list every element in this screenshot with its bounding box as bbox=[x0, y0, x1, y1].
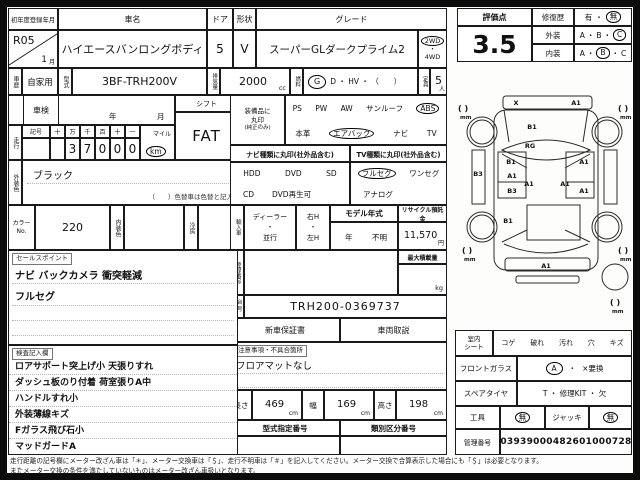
glass-replace: ×要換 bbox=[582, 363, 603, 374]
interior-grade-value: A・ B・ C bbox=[574, 44, 632, 62]
equipment-label-cell: 装備品に 丸印 (純正のみ) bbox=[230, 95, 285, 145]
seat-hole: 穴 bbox=[588, 338, 595, 348]
reg-number-value bbox=[244, 250, 398, 295]
ext-color-dotline bbox=[27, 183, 233, 184]
mgmt-number-label-cell: 管理番号 bbox=[455, 429, 500, 455]
spare-tire bbox=[602, 264, 628, 290]
ext-b: B bbox=[596, 31, 601, 40]
max-load-unit: kg bbox=[435, 284, 443, 292]
displacement-unit: cc bbox=[279, 84, 286, 92]
mileage-label-cell: 走行 bbox=[8, 125, 22, 160]
seat-burn: コゲ bbox=[501, 338, 515, 348]
fuel-label: 燃料 bbox=[294, 76, 300, 87]
displacement-label-cell: 排気量 bbox=[207, 68, 220, 95]
car-name-value: ハイエースバンロングボディ bbox=[58, 30, 207, 68]
height-unit: cm bbox=[434, 410, 443, 417]
mark-left-quarter: B1 bbox=[503, 217, 513, 225]
ext-color-label-cell: 外装色 bbox=[8, 160, 22, 205]
seat-label-cell: 室内 シート bbox=[455, 330, 493, 356]
bracket-rear-left: ( ) bbox=[462, 246, 472, 255]
auction-sheet-left-table: 初年度登録年月 車名 ドア 形状 グレード R05 1 月 ハイエースバンロング… bbox=[8, 8, 447, 455]
bracket-rear-right: ( ) bbox=[618, 246, 628, 255]
equip-pw: PW bbox=[315, 104, 327, 113]
seat-condition-cell: コゲ 破れ 汚れ 穴 キズ bbox=[493, 330, 632, 356]
color-no-value: 220 bbox=[35, 205, 110, 250]
equipment-items-cell: PS PW AW サンルーフ ABS 本革 エアバック ナビ TV bbox=[285, 95, 447, 145]
mark-front-bumper-left: X bbox=[513, 99, 518, 107]
tv-items-cell: フルセグ ワンセグ アナログ bbox=[350, 162, 447, 205]
int-color-label: 内装色 bbox=[114, 219, 120, 237]
exterior-grade-value: A・ B・ C bbox=[574, 26, 632, 44]
recycle-amount: 11,570 bbox=[404, 230, 437, 241]
class-number-value bbox=[340, 436, 447, 455]
int-dot1: ・ bbox=[587, 48, 595, 59]
int-b-circled: B bbox=[596, 47, 609, 58]
handle-left: 左H bbox=[307, 233, 319, 244]
equip-navi: ナビ bbox=[393, 128, 408, 139]
history-label-cell: 車歴 bbox=[8, 68, 22, 95]
a-pillars bbox=[504, 110, 588, 142]
max-load-value: kg bbox=[398, 264, 447, 295]
first-registration-header: 初年度登録年月 bbox=[8, 8, 58, 30]
digit-header-100: 百 bbox=[95, 125, 110, 138]
sales-dot1 bbox=[12, 283, 234, 284]
history: 自家用 bbox=[27, 76, 53, 88]
equip-tv: TV bbox=[427, 129, 437, 138]
length: 469 bbox=[265, 399, 284, 410]
score-label: 評価点 bbox=[483, 12, 507, 23]
digit-header-100k: 十 bbox=[50, 125, 65, 138]
tool-label-cell: 工具 bbox=[455, 406, 500, 429]
shaken-month-unit: 月 bbox=[157, 111, 165, 122]
inspector-line: 外装薄線キズ bbox=[9, 407, 237, 423]
first-registration-value: R05 1 月 bbox=[8, 30, 58, 68]
digit-h4: 百 bbox=[99, 127, 105, 136]
drive-4wd: 4WD bbox=[425, 54, 441, 62]
equipment-label-3: (純正のみ) bbox=[244, 125, 270, 133]
mark-center: A1 bbox=[524, 180, 534, 188]
tv-oneseg: ワンセグ bbox=[409, 168, 439, 179]
km-unit-circled: km bbox=[146, 146, 166, 157]
fuel-value: G D ・ HV ・ （ ） bbox=[303, 68, 418, 95]
interior-grade-label: 内装 bbox=[546, 48, 561, 59]
length-value: 469 cm bbox=[252, 390, 302, 420]
model-code-value: 3BF-TRH200V bbox=[72, 68, 207, 95]
navi-row1: HDD DVD SD bbox=[231, 163, 349, 184]
height-label-cell: 高さ bbox=[374, 390, 396, 420]
car-name: ハイエースバンロングボディ bbox=[62, 41, 204, 57]
width-value: 169 cm bbox=[324, 390, 374, 420]
mileage-d1 bbox=[50, 138, 65, 160]
int-color-value bbox=[124, 205, 184, 250]
height-value: 198 cm bbox=[396, 390, 447, 420]
inspector-line: Fガラス飛び石小 bbox=[9, 423, 237, 439]
displacement-value: 2000 cc bbox=[220, 68, 290, 95]
notes-line1: フロアマットなし bbox=[236, 358, 312, 372]
spare-tire-label-cell: スペアタイヤ bbox=[455, 381, 517, 406]
recycle-unit: 円 bbox=[438, 238, 444, 247]
tv-analog: アナログ bbox=[363, 189, 393, 200]
digit-h1: 十 bbox=[54, 127, 60, 136]
color-no-label-2: No. bbox=[17, 228, 27, 236]
import-dealer-cell: ディーラー ・ 並行 bbox=[244, 205, 296, 250]
ac-label: 冷房 bbox=[188, 222, 194, 234]
month-unit: 月 bbox=[49, 57, 55, 66]
type-designation-value bbox=[230, 436, 340, 455]
model-label-cell: 型式 bbox=[58, 68, 72, 95]
mm-spare: mm bbox=[612, 309, 624, 315]
sales-line2: フルセグ bbox=[15, 288, 55, 303]
equip-airbag-circled: エアバック bbox=[329, 128, 374, 139]
equip-ps: PS bbox=[293, 104, 302, 113]
import-label: 輸入車 bbox=[234, 219, 240, 236]
mark-left-front-door: B1 bbox=[506, 158, 516, 166]
tool-value: 無 bbox=[500, 406, 545, 429]
repair-history-value: 有 ・ 無 bbox=[574, 8, 632, 26]
tv-row1: フルセグ ワンセグ bbox=[351, 163, 446, 184]
front-right-wheel-inner bbox=[595, 120, 619, 144]
ext-color-value: ブラック （ ）色替車は色替と記入 bbox=[22, 160, 238, 205]
capacity-value: 5 人 bbox=[430, 68, 447, 95]
inspector-lines: ロアサポート突上げ小 天張りすれ ダッシュ板のり付着 荷室張りA中 ハンドルすれ… bbox=[9, 359, 237, 455]
digit-10: 0 bbox=[114, 142, 122, 156]
door-header: ドア bbox=[207, 8, 233, 30]
footer-line2: またメーター交換の条件を満たしていないものはメーター改ざん車扱いとなります。 bbox=[10, 467, 632, 477]
mileage-symbol-label: 記号 bbox=[30, 127, 42, 136]
shift-label: シフト bbox=[196, 99, 217, 109]
tool-label: 工具 bbox=[470, 412, 485, 423]
class-number-label: 類別区分番号 bbox=[371, 423, 416, 434]
windshield bbox=[502, 140, 590, 160]
fuel-label-cell: 燃料 bbox=[290, 68, 303, 95]
warranty-cell: 新車保証書 bbox=[230, 318, 340, 342]
mark-right-door-mid: A1 bbox=[560, 180, 570, 188]
manual-label: 車両取説 bbox=[378, 325, 410, 336]
fuel-options: D ・ HV ・ （ ） bbox=[330, 76, 401, 87]
capacity-unit: 人 bbox=[439, 84, 445, 93]
mark-left-sill: B3 bbox=[473, 170, 482, 178]
inspector-line: ハンドルすれ小 bbox=[9, 391, 237, 407]
front-right-wheel bbox=[592, 117, 622, 147]
mileage-symbol-header: 記号 bbox=[22, 125, 50, 138]
capacity-label: 定員 bbox=[421, 76, 427, 87]
repair-no-circled: 無 bbox=[606, 11, 622, 22]
door-label: ドア bbox=[212, 14, 228, 25]
recycle-label: リサイクル預託金 bbox=[399, 205, 446, 223]
height: 198 bbox=[409, 399, 428, 410]
front-glass-value: A ・ ×要換 bbox=[517, 356, 632, 381]
type-designation-label: 型式指定番号 bbox=[263, 423, 308, 434]
digit-h2: 万 bbox=[69, 127, 75, 136]
jack-label: ジャッキ bbox=[552, 412, 582, 423]
ac-label-cell: 冷房 bbox=[184, 205, 198, 250]
handle-right: 右H bbox=[307, 212, 319, 223]
footer-notes: 走行距離の記号欄にメーター改ざん車は「＊」、メーター交換車は「＄」、走行不明車は… bbox=[10, 457, 632, 476]
rear-left-wheel-inner bbox=[470, 215, 494, 239]
sales-dot3 bbox=[12, 320, 234, 321]
spare-tire-value: T ・ 修理KIT ・ 欠 bbox=[517, 381, 632, 406]
mm-rear-right: mm bbox=[620, 257, 632, 263]
mark-hood: B1 bbox=[527, 123, 537, 131]
equip-aw: AW bbox=[341, 104, 353, 113]
ext-dot1: ・ bbox=[587, 30, 595, 41]
grade-label: グレード bbox=[336, 14, 368, 25]
int-dot2: ・ bbox=[612, 48, 620, 59]
ext-c-circled: C bbox=[613, 29, 626, 40]
front-left-wheel bbox=[467, 117, 497, 147]
tv-type-header: TV種類に丸印(社外品含む) bbox=[350, 145, 447, 162]
jack-none-circled: 無 bbox=[603, 412, 619, 423]
equipment-row2: 本革 エアバック ナビ TV bbox=[286, 121, 446, 146]
navi-dvd-playable: DVD再生可 bbox=[272, 189, 311, 200]
ext-color-note: （ ）色替車は色替と記入 bbox=[149, 191, 234, 201]
int-color-label-cell: 内装色 bbox=[110, 205, 124, 250]
registration-month: 1 bbox=[41, 55, 47, 65]
seat-tear: 破れ bbox=[530, 338, 544, 348]
sales-dot2 bbox=[12, 305, 234, 306]
max-load-header: 最大積載量 bbox=[398, 250, 447, 264]
equip-leather: 本革 bbox=[295, 128, 310, 139]
seat-label-1: 室内 bbox=[468, 335, 481, 343]
seat-scratch: キズ bbox=[610, 338, 624, 348]
score-box: 評価点 3.5 修復歴 有 ・ 無 外装 A・ B・ C 内装 A・ B・ C bbox=[457, 8, 632, 62]
ext-color: ブラック bbox=[33, 167, 73, 182]
mm-front-left: mm bbox=[460, 115, 472, 121]
import-dealer: ディーラー bbox=[253, 212, 288, 223]
car-damage-diagram: X A1 B1 RG B3 B1 A1 B3 A1 A1 A1 A1 B1 A1… bbox=[452, 86, 637, 328]
glass-a-circled: A bbox=[546, 362, 563, 375]
inspector-notes-cell: 検査記入欄 ロアサポート突上げ小 天張りすれ ダッシュ板のり付着 荷室張りA中 … bbox=[8, 345, 238, 455]
inspector-line: マッドガードA bbox=[9, 439, 237, 455]
length-unit: cm bbox=[289, 410, 298, 417]
mgmt-number-label: 管理番号 bbox=[464, 437, 491, 447]
class-number-header: 類別区分番号 bbox=[340, 420, 447, 436]
digit-header-10k: 万 bbox=[65, 125, 80, 138]
mark-right-slide-door: A1 bbox=[579, 187, 589, 195]
width-label: 幅 bbox=[309, 400, 317, 411]
spare-tire-label: スペアタイヤ bbox=[464, 388, 508, 399]
import-dot1: ・ bbox=[267, 222, 274, 233]
import-dot2: ・ bbox=[310, 222, 317, 233]
navi-type-label: ナビ種類に丸印(社外品含む) bbox=[246, 149, 334, 159]
car-name-label: 車名 bbox=[125, 14, 141, 25]
equipment-label-2: 丸印 bbox=[251, 116, 264, 125]
digit-h5: 十 bbox=[114, 127, 120, 136]
cargo-area bbox=[527, 205, 580, 240]
bracket-front-left: ( ) bbox=[458, 104, 468, 113]
score-value: 3.5 bbox=[472, 30, 516, 59]
model-code: 3BF-TRH200V bbox=[102, 75, 177, 88]
inspector-line: ロアサポート突上げ小 天張りすれ bbox=[9, 359, 237, 375]
shaken-cell: 車検 年 月 bbox=[8, 95, 175, 125]
glass-dot: ・ bbox=[569, 363, 577, 374]
color-no: 220 bbox=[62, 221, 83, 234]
door-count: 5 bbox=[216, 42, 224, 56]
width-unit: cm bbox=[361, 410, 370, 417]
repair-history-label: 修復歴 bbox=[542, 12, 565, 23]
import-label-cell: 輸入車 bbox=[230, 205, 244, 250]
navi-sd: SD bbox=[326, 169, 337, 178]
recycle-header: リサイクル預託金 bbox=[398, 205, 447, 222]
manual-cell: 車両取説 bbox=[340, 318, 447, 342]
inspector-tag: 検査記入欄 bbox=[12, 348, 53, 360]
mgmt-number-value: 03939000482601000728 bbox=[500, 429, 632, 455]
mileage-symbol-value bbox=[22, 138, 50, 160]
footer-line1: 走行距離の記号欄にメーター改ざん車は「＊」、メーター交換車は「＄」、走行不明車は… bbox=[10, 457, 632, 467]
recycle-value: 11,570 円 bbox=[398, 222, 447, 250]
grade-name: スーパーGLダークプライム2 bbox=[269, 42, 405, 57]
sales-points-tag: セールスポイント bbox=[12, 253, 72, 265]
exterior-grade-label: 外装 bbox=[546, 30, 561, 41]
digit-header-1: 一 bbox=[125, 125, 140, 138]
width: 169 bbox=[337, 399, 356, 410]
type-designation-header: 型式指定番号 bbox=[230, 420, 340, 436]
mm-front-right: mm bbox=[620, 115, 632, 121]
shape-header: 形状 bbox=[233, 8, 256, 30]
digit-1: 0 bbox=[129, 142, 137, 156]
tv-row2: アナログ bbox=[351, 184, 446, 205]
digit-header-10: 十 bbox=[110, 125, 125, 138]
inspector-line: ダッシュ板のり付着 荷室張りA中 bbox=[9, 375, 237, 391]
score-header: 評価点 bbox=[457, 8, 532, 26]
handle-cell: 右H ・ 左H bbox=[296, 205, 330, 250]
chassis-number-value: TRH200-0369737 bbox=[244, 295, 447, 318]
digit-header-1k: 千 bbox=[80, 125, 95, 138]
seat-stain: 汚れ bbox=[559, 338, 573, 348]
equip-sunroof: サンルーフ bbox=[366, 103, 403, 114]
front-glass-label: フロントガラス bbox=[460, 363, 512, 374]
import-parallel: 並行 bbox=[263, 233, 277, 244]
model-year-label: モデル年式 bbox=[345, 208, 383, 219]
tv-type-label: TV種類に丸印(社外品含む) bbox=[356, 149, 440, 159]
right-sill-panel bbox=[604, 150, 617, 204]
notes-dotline2 bbox=[234, 387, 443, 388]
navi-row2: CD DVD再生可 bbox=[231, 184, 349, 205]
equipment-label-1: 装備品に bbox=[245, 107, 271, 116]
notes-tag: 注意事項・不具合箇所 bbox=[234, 345, 307, 357]
width-label-cell: 幅 bbox=[302, 390, 324, 420]
repair-dot: ・ bbox=[595, 12, 603, 23]
front-glass-label-cell: フロントガラス bbox=[455, 356, 517, 381]
model-year-header: モデル年式 bbox=[330, 205, 398, 222]
car-name-header: 車名 bbox=[58, 8, 207, 30]
navi-cd: CD bbox=[243, 190, 254, 199]
equip-abs-circled: ABS bbox=[416, 103, 439, 114]
rear-right-wheel-inner bbox=[595, 215, 619, 239]
mgmt-number: 03939000482601000728 bbox=[500, 437, 631, 447]
model-year-unknown: 不明 bbox=[372, 232, 387, 243]
exterior-grade-header: 外装 bbox=[532, 26, 574, 44]
mileage-label: 走行 bbox=[12, 137, 18, 149]
color-no-label-1: カラー bbox=[12, 220, 30, 228]
history-value: 自家用 bbox=[22, 68, 58, 95]
digit-h3: 千 bbox=[84, 127, 90, 136]
sales-dot4 bbox=[12, 335, 234, 336]
shift-value: FAT bbox=[175, 112, 238, 160]
rear-step bbox=[516, 276, 579, 283]
shape-code: V bbox=[240, 42, 248, 56]
sales-points-cell: セールスポイント ナビ バックカメラ 衝突軽減 フルセグ bbox=[8, 250, 238, 345]
ext-color-label: 外装色 bbox=[12, 174, 18, 192]
rear-left-wheel bbox=[467, 212, 497, 242]
notes-cell: 注意事項・不具合箇所 フロアマットなし bbox=[230, 342, 447, 390]
equipment-row1: PS PW AW サンルーフ ABS bbox=[286, 96, 446, 121]
navi-dvd: DVD bbox=[285, 169, 302, 178]
spare-tire-options: T ・ 修理KIT ・ 欠 bbox=[543, 388, 606, 399]
jack-label-cell: ジャッキ bbox=[545, 406, 589, 429]
digit-10k: 3 bbox=[69, 142, 77, 156]
shift-header: シフト bbox=[175, 95, 238, 112]
first-registration-label: 初年度登録年月 bbox=[11, 15, 55, 24]
digit-1k: 7 bbox=[84, 142, 92, 156]
int-a: A bbox=[580, 49, 585, 58]
drivetrain-cell: 2WD ・ 4WD bbox=[418, 30, 447, 68]
displacement: 2000 bbox=[239, 75, 267, 88]
mileage-d5: 0 bbox=[110, 138, 125, 160]
capacity-label-cell: 定員 bbox=[418, 68, 430, 95]
ext-a: A bbox=[580, 31, 585, 40]
max-load-label: 最大積載量 bbox=[407, 253, 437, 262]
shaken-year-unit: 年 bbox=[109, 111, 117, 122]
repair-history-header: 修復歴 bbox=[532, 8, 574, 26]
grade-header: グレード bbox=[256, 8, 447, 30]
right-bottom-table: 室内 シート コゲ 破れ 汚れ 穴 キズ フロントガラス A ・ ×要換 スペア… bbox=[455, 330, 632, 455]
navi-type-header: ナビ種類に丸印(社外品含む) bbox=[230, 145, 350, 162]
mark-rear-bumper: A1 bbox=[541, 262, 551, 270]
sales-line1: ナビ バックカメラ 衝突軽減 bbox=[15, 267, 142, 282]
mileage-unit-cell: マイル km bbox=[140, 125, 175, 160]
mark-front-bumper-right: A1 bbox=[571, 99, 581, 107]
navi-hdd: HDD bbox=[243, 169, 260, 178]
color-no-label-cell: カラー No. bbox=[8, 205, 35, 250]
repair-yes: 有 bbox=[585, 12, 593, 23]
score-value-cell: 3.5 bbox=[457, 26, 532, 62]
model-year-unit: 年 bbox=[345, 232, 353, 243]
displacement-label: 排気量 bbox=[211, 73, 217, 90]
mileage-d2: 3 bbox=[65, 138, 80, 160]
interior-grade-header: 内装 bbox=[532, 44, 574, 62]
front-left-wheel-inner bbox=[470, 120, 494, 144]
grade-value: スーパーGLダークプライム2 bbox=[256, 30, 418, 68]
bracket-spare: ( ) bbox=[610, 298, 620, 307]
history-label: 車歴 bbox=[12, 76, 18, 88]
notes-dotline1 bbox=[234, 373, 443, 374]
rear-right-wheel bbox=[592, 212, 622, 242]
digit-100: 0 bbox=[99, 142, 107, 156]
ext-dot2: ・ bbox=[604, 30, 612, 41]
warranty-label: 新車保証書 bbox=[265, 325, 305, 336]
model-year-value: 年 不明 bbox=[330, 222, 398, 250]
mile-unit: マイル bbox=[153, 129, 171, 138]
chassis-number: TRH200-0369737 bbox=[290, 300, 401, 313]
shaken-label: 車検 bbox=[23, 96, 59, 124]
bracket-front-right: ( ) bbox=[618, 104, 628, 113]
tool-none-circled: 無 bbox=[515, 412, 531, 423]
digit-h6: 一 bbox=[129, 127, 135, 136]
shape-value: V bbox=[233, 30, 256, 68]
fuel-gasoline-circled: G bbox=[308, 75, 326, 89]
int-c: C bbox=[621, 49, 626, 58]
height-label: 高さ bbox=[378, 400, 393, 411]
mileage-d4: 0 bbox=[95, 138, 110, 160]
jack-value: 無 bbox=[589, 406, 632, 429]
seat-label-2: シート bbox=[464, 343, 484, 351]
registration-year: R05 bbox=[13, 34, 35, 47]
mileage-d6: 0 bbox=[125, 138, 140, 160]
tv-fullseg-circled: フルセグ bbox=[358, 168, 396, 179]
door-value: 5 bbox=[207, 30, 233, 68]
rear-window bbox=[504, 244, 588, 253]
